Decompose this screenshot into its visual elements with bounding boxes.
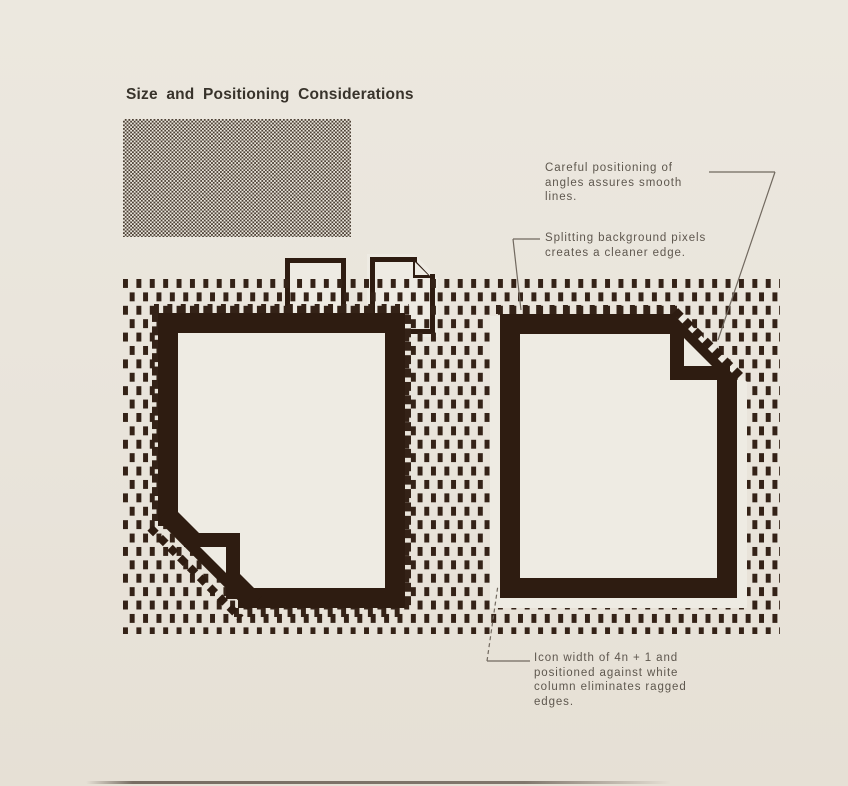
icon-edge-top: [370, 257, 417, 262]
annotation-line: edges.: [534, 695, 687, 710]
icon-edge-left: [158, 313, 178, 526]
dither-block-small: [123, 119, 351, 237]
icon-edge-right: [717, 374, 737, 598]
icon-edge-right: [385, 313, 405, 608]
icon-body: [158, 313, 405, 608]
annotation-line: angles assures smooth: [545, 176, 682, 191]
icon-fold-leg-vertical: [226, 547, 240, 599]
icon-edge-top: [158, 313, 405, 333]
icon-fold-leg-horizontal: [670, 366, 730, 380]
icon-edge-bottom: [238, 588, 405, 608]
annotation-line: column eliminates ragged: [534, 680, 687, 695]
merged-pixels-top: [154, 304, 409, 313]
annotation-smooth-lines: Careful positioning of angles assures sm…: [545, 161, 682, 205]
icon-edge-bottom: [500, 578, 737, 598]
icon-edge-top: [285, 258, 346, 263]
annotation-line: lines.: [545, 190, 682, 205]
annotation-line: Splitting background pixels: [545, 231, 706, 246]
merged-pixels-bottom: [234, 608, 405, 617]
annotation-line: creates a cleaner edge.: [545, 246, 706, 261]
icon-fold-leg-horizontal: [184, 533, 240, 547]
large-document-icon-clean: [500, 314, 737, 598]
page-title: Size and Positioning Considerations: [126, 86, 414, 104]
scan-edge-shadow: [86, 781, 671, 784]
annotation-icon-width: Icon width of 4n + 1 and positioned agai…: [534, 651, 687, 709]
page: Size and Positioning Considerations: [0, 0, 848, 786]
icon-edge-top: [500, 314, 676, 334]
icon-edge-left: [500, 314, 520, 598]
annotation-line: Icon width of 4n + 1 and: [534, 651, 687, 666]
ragged-notches-right: [405, 315, 411, 607]
annotation-line: positioned against white: [534, 666, 687, 681]
large-document-icon-ragged: [158, 313, 405, 608]
annotation-line: Careful positioning of: [545, 161, 682, 176]
annotation-split-pixels: Splitting background pixels creates a cl…: [545, 231, 706, 260]
merged-pixels-top: [496, 305, 681, 314]
